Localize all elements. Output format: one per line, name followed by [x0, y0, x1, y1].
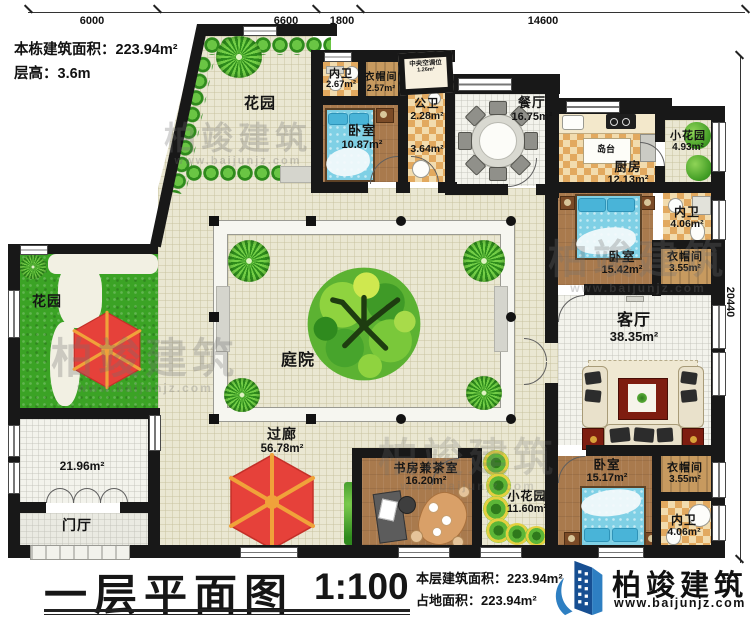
room-label-bed-top: 卧室 10.87m² [330, 124, 394, 151]
cushion [680, 389, 697, 403]
wall [396, 182, 410, 193]
column [209, 312, 219, 322]
wall [352, 448, 362, 552]
wall [584, 284, 718, 295]
wall [545, 383, 558, 445]
column [209, 216, 219, 226]
room-label-foyer: 门厅 [48, 518, 106, 534]
column [506, 312, 516, 322]
tea-cup [428, 502, 439, 513]
floor-plan: 6000 6600 1800 14600 20440 本栋建筑面积：223.94… [0, 0, 750, 623]
room-label-courtyard: 庭院 [268, 352, 328, 370]
window [712, 505, 726, 541]
window [712, 305, 726, 349]
window [712, 122, 726, 172]
wall [662, 106, 718, 120]
palm-tree [466, 376, 502, 410]
room-label-living: 客厅 38.35m² [596, 312, 672, 344]
palm-tree [228, 240, 270, 282]
window [243, 26, 277, 36]
land-area-note: 占地面积：223.94m² [416, 590, 537, 609]
room-label-bath-top: 内卫 2.67m² [320, 68, 362, 91]
room-label-garden-left: 花园 [22, 294, 72, 310]
wall [472, 448, 482, 552]
dining-table-top [479, 122, 517, 160]
wall [352, 448, 432, 458]
pillow [607, 198, 635, 212]
dining-chair [489, 167, 507, 181]
window [8, 290, 20, 338]
dining-chair [458, 132, 472, 150]
tv-stand [626, 296, 644, 302]
tea-stool [458, 486, 470, 498]
room-label-bed-right: 卧室 15.42m² [592, 250, 652, 276]
room-label-cloak-br: 衣帽间 3.55m² [658, 462, 712, 486]
wall [586, 445, 718, 456]
window [712, 352, 726, 396]
window [398, 547, 450, 558]
table-plant [637, 393, 647, 403]
palm-tree [216, 36, 262, 78]
wall [545, 198, 558, 284]
dimension-line-right [740, 57, 741, 563]
dimension-line-top [28, 12, 745, 13]
palm-tree [20, 255, 46, 279]
cushion [657, 427, 674, 442]
room-label-smallgarden-b: 小花园 11.60m² [500, 490, 554, 516]
tea-cup [441, 515, 452, 526]
room-label-corridor: 过廊 56.78m² [250, 427, 314, 456]
cushion [680, 371, 698, 385]
ac-unit-box: 中央空调位 1.26m² [398, 51, 454, 96]
column [306, 414, 316, 424]
title-underline-thin [44, 614, 410, 615]
room-label-bed-br: 卧室 15.17m² [578, 458, 636, 484]
cushion [609, 427, 630, 443]
wall [445, 184, 508, 195]
palm-tree [224, 378, 260, 412]
window [480, 547, 522, 558]
wall [8, 408, 160, 419]
window [20, 245, 48, 255]
cushion [633, 427, 654, 443]
bush [686, 155, 712, 181]
window [712, 200, 726, 240]
tea-cup [432, 527, 442, 537]
garden-umbrella [64, 310, 150, 390]
pillow [578, 198, 606, 212]
nightstand [560, 196, 575, 210]
room-label-smallgarden-tr: 小花园 4.93m² [663, 130, 713, 154]
window [324, 52, 352, 62]
wall [545, 284, 558, 295]
room-label-study: 书房兼茶室 16.20m² [380, 462, 472, 488]
cushion [584, 389, 601, 403]
room-label-pubbath: 公卫 2.28m² [406, 98, 448, 123]
building-area-note: 本栋建筑面积：223.94m² [14, 38, 178, 59]
window [712, 462, 726, 498]
bush-row [185, 164, 281, 182]
plan-scale: 1:100 [314, 566, 409, 608]
column [506, 414, 516, 424]
column [396, 216, 406, 226]
window [8, 425, 20, 457]
dining-chair [524, 132, 538, 150]
nightstand [640, 196, 655, 210]
floor-height-note: 层高：3.6m [14, 62, 91, 83]
column [506, 216, 516, 226]
dim-label-6000: 6000 [60, 15, 124, 27]
room-label-cloak-top: 衣帽间 2.57m² [358, 72, 404, 93]
wall [545, 74, 559, 198]
pillow [584, 528, 610, 542]
window [8, 462, 20, 494]
room-label-garden-tl: 花园 [230, 96, 290, 113]
room-label-ac: 中央空调位 1.26m² [404, 59, 447, 75]
column [396, 414, 406, 424]
wall [311, 182, 368, 193]
company-logo-url: www.baijunjz.com [614, 596, 746, 610]
wall [658, 240, 712, 249]
room-label-bath-br: 内卫 4.06m² [658, 514, 710, 539]
entrance-steps [30, 545, 130, 560]
window [566, 101, 620, 113]
wall [545, 445, 558, 456]
room-label-kitchen: 厨房 12.13m² [596, 160, 660, 186]
nightstand [376, 108, 394, 123]
dim-label-14600: 14600 [508, 15, 578, 27]
wall [120, 502, 160, 513]
tea-stool [410, 530, 423, 543]
room-label-bath-tr: 内卫 4.06m² [662, 206, 712, 231]
pillow [612, 528, 638, 542]
wall [8, 502, 46, 513]
cushion [584, 371, 602, 385]
column [209, 414, 219, 424]
title-underline [44, 609, 410, 612]
room-label-island: 岛台 [585, 144, 627, 154]
burner [622, 118, 630, 126]
room-label-room2196: 21.96m² [46, 460, 118, 473]
room-label-cloak-right: 衣帽间 3.55m² [658, 251, 712, 275]
desk-chair [398, 496, 416, 514]
room-label-hall364: 3.64m² [406, 144, 448, 156]
window [240, 547, 298, 558]
wall [658, 492, 712, 501]
burner [610, 118, 618, 126]
kitchen-sink [562, 115, 584, 130]
wall [545, 295, 558, 343]
window [149, 415, 161, 451]
floor-area-note: 本层建筑面积：223.94m² [416, 568, 563, 587]
company-logo-icon [552, 557, 608, 619]
window [458, 78, 512, 91]
column [306, 216, 316, 226]
palm-tree [463, 240, 505, 282]
patio-umbrella [217, 452, 327, 552]
room-label-dining: 餐厅 16.75m² [505, 96, 559, 123]
